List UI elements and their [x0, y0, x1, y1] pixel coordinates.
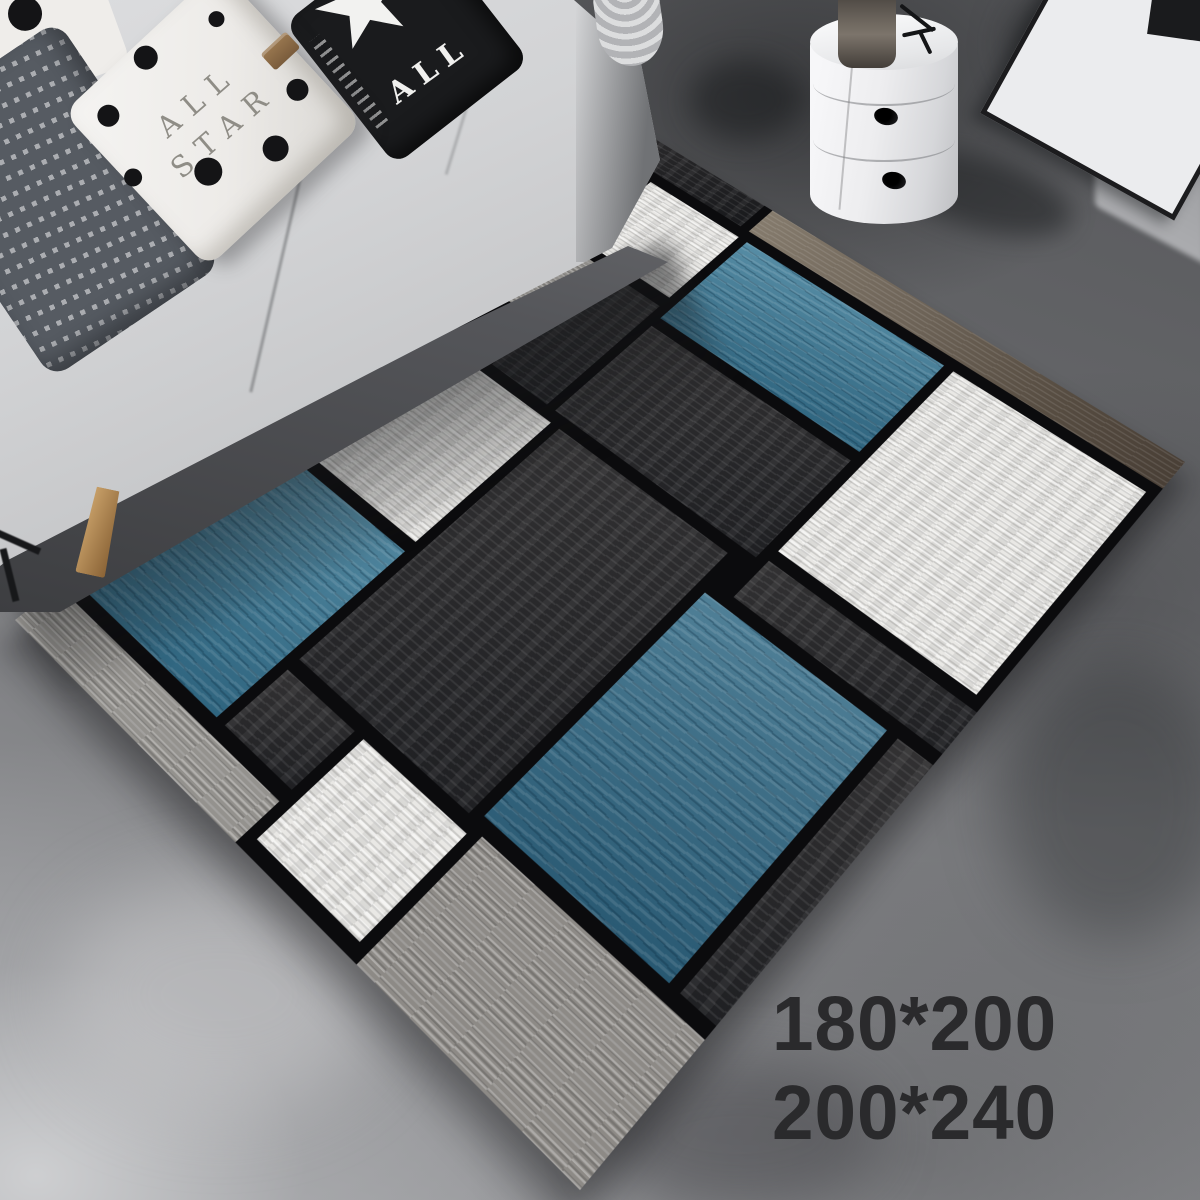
- sofa-leg-right: [572, 124, 592, 213]
- floor-stain: [690, 60, 800, 140]
- size-overlay: 180*200 200*240: [772, 980, 1057, 1159]
- vase: [838, 0, 896, 68]
- floor-stain: [1000, 660, 1200, 940]
- size-label-1: 180*200: [772, 980, 1057, 1069]
- size-label-2: 200*240: [772, 1069, 1057, 1158]
- living-room-scene: ALL ALL STAR: [0, 0, 1200, 1200]
